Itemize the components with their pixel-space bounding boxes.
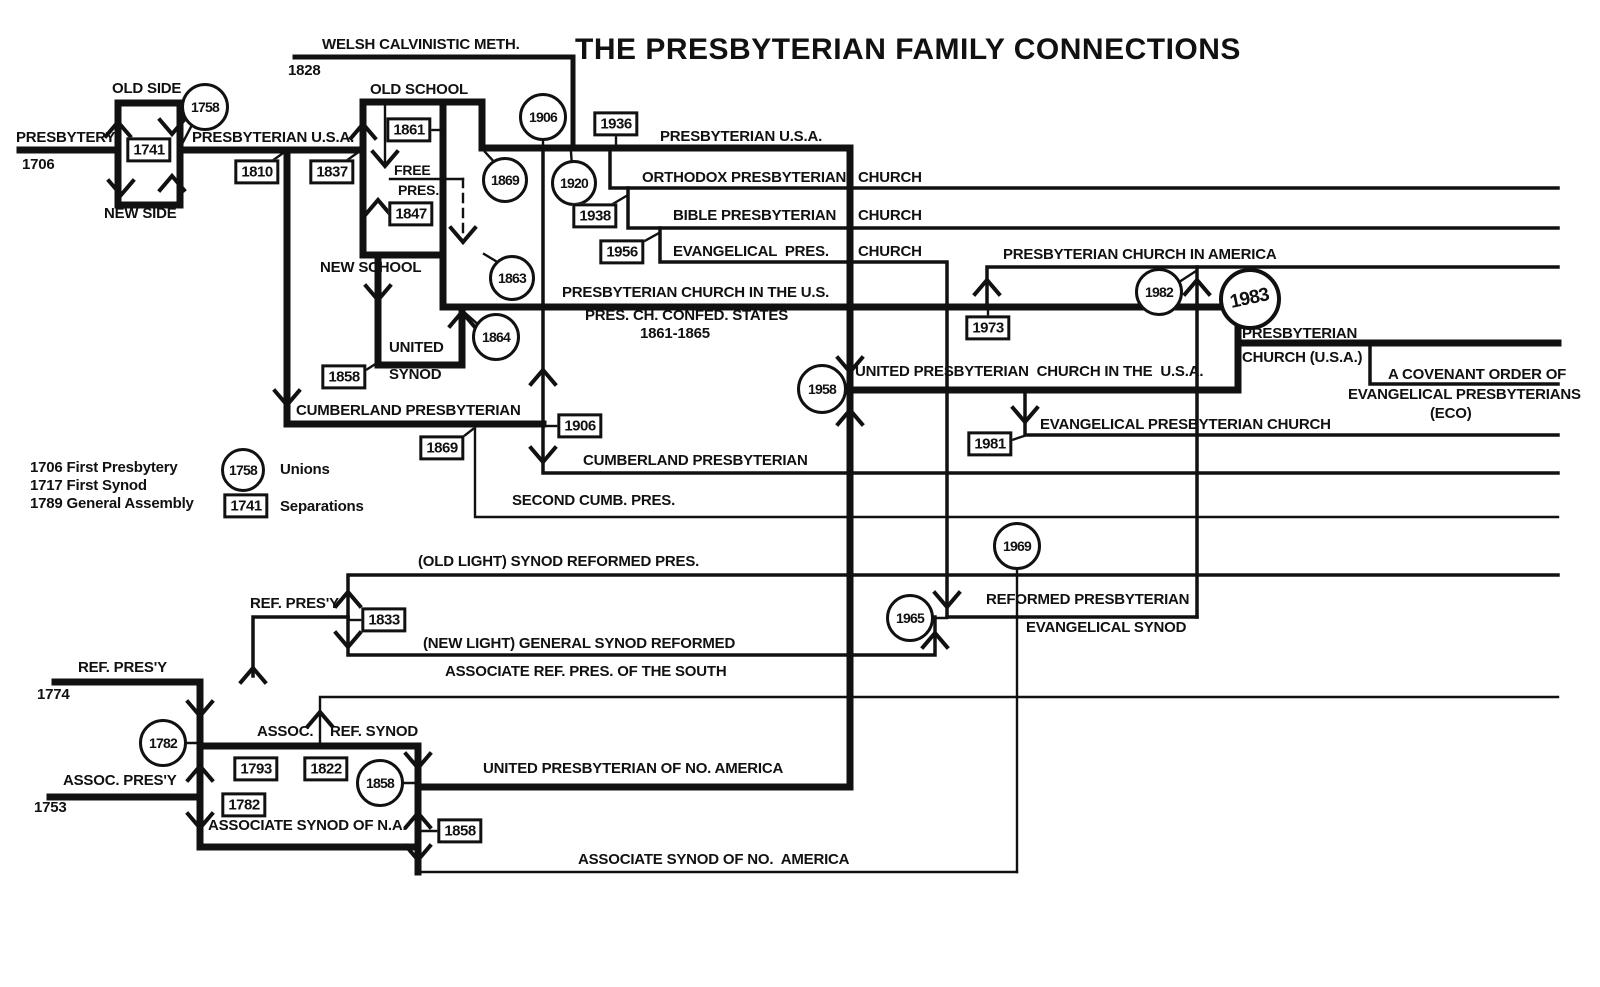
diagram-year-markers: 1758190618691920186318641958198219831969… (0, 0, 1600, 987)
year-box-1793: 1793 (233, 756, 278, 781)
year-circle-1864-united-synod-union: 1864 (472, 313, 520, 361)
year-box-1847-free-pres-split: 1847 (388, 201, 433, 226)
year-circle-1758-old-new-side-union-year: 1758 (191, 99, 219, 115)
year-circle-1858-upna-union-year: 1858 (366, 775, 394, 791)
year-circle-1965-rpes-union-year: 1965 (896, 610, 924, 626)
year-circle-1920-welsh-union-year: 1920 (560, 175, 588, 191)
year-circle-1863: 1863 (489, 255, 535, 301)
year-circle-1758-old-new-side-union: 1758 (181, 83, 229, 131)
legend-unions-symbol-year: 1758 (229, 462, 257, 478)
year-circle-1869-old-new-school-union-year: 1869 (491, 172, 519, 188)
year-box-1822-arp-south-split: 1822 (303, 756, 348, 781)
year-box-1837-old-new-school-split: 1837 (309, 159, 354, 184)
year-circle-1782-assoc-reformed-union: 1782 (139, 719, 187, 767)
year-box-1936-orthodox-split: 1936 (593, 111, 638, 136)
year-circle-1969-year: 1969 (1003, 538, 1031, 554)
year-circle-1858-upna-union: 1858 (356, 759, 404, 807)
year-box-1858-associate-synod-remnant: 1858 (437, 818, 482, 843)
year-circle-1782-assoc-reformed-union-year: 1782 (149, 735, 177, 751)
year-box-1810-cumberland-split: 1810 (234, 159, 279, 184)
year-circle-1965-rpes-union: 1965 (886, 594, 934, 642)
year-circle-1983-pcusa-union-year: 1983 (1229, 284, 1272, 314)
year-box-1906-cumberland-remnant: 1906 (557, 413, 602, 438)
presbyterian-family-connections-diagram: THE PRESBYTERIAN FAMILY CONNECTIONSWELSH… (0, 0, 1600, 987)
year-circle-1920-welsh-union: 1920 (551, 160, 597, 206)
year-box-1861: 1861 (386, 117, 431, 142)
year-circle-1982-pca-union: 1982 (1135, 268, 1183, 316)
year-box-1956-evangelical-split: 1956 (599, 239, 644, 264)
year-box-1938-bible-split: 1938 (572, 203, 617, 228)
legend-unions-symbol: 1758 (221, 448, 265, 492)
year-circle-1906-cumberland-union-year: 1906 (529, 109, 557, 125)
year-box-1833-old-new-light-split: 1833 (361, 607, 406, 632)
year-circle-1982-pca-union-year: 1982 (1145, 284, 1173, 300)
year-circle-1958-upcusa-union-year: 1958 (808, 381, 836, 397)
year-circle-1969: 1969 (993, 522, 1041, 570)
legend-separations-symbol: 1741 (223, 493, 268, 518)
year-box-1741-old-new-side-split: 1741 (126, 137, 171, 162)
year-box-1981-epc-split: 1981 (967, 431, 1012, 456)
year-circle-1983-pcusa-union: 1983 (1219, 268, 1281, 330)
year-box-1782: 1782 (221, 792, 266, 817)
year-box-1869-second-cumb-split: 1869 (419, 435, 464, 460)
year-box-1858-united-synod-split: 1858 (321, 364, 366, 389)
year-circle-1864-united-synod-union-year: 1864 (482, 329, 510, 345)
year-circle-1906-cumberland-union: 1906 (519, 93, 567, 141)
year-box-1973-pca-split: 1973 (965, 315, 1010, 340)
year-circle-1958-upcusa-union: 1958 (797, 364, 847, 414)
year-circle-1863-year: 1863 (498, 270, 526, 286)
year-circle-1869-old-new-school-union: 1869 (482, 157, 528, 203)
